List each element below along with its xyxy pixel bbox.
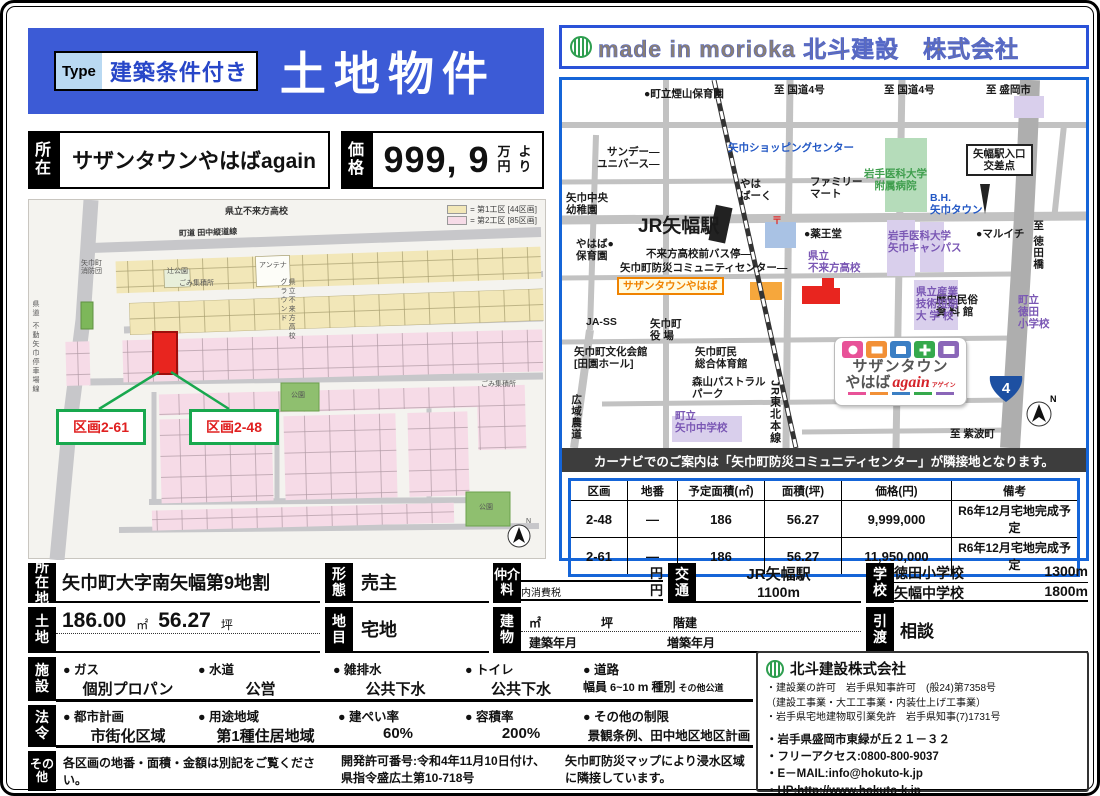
map-label-kozukata-hs: 県立 不来方高校 xyxy=(808,250,861,274)
col-kukaku: 区画 xyxy=(570,480,628,501)
southern-town-logo: サザンタウン やはば again アゲイン xyxy=(834,337,967,406)
tochi-tsubo: 56.27 xyxy=(158,609,211,633)
label-kotsu: 交通 xyxy=(668,563,696,603)
bullet-icon: ● xyxy=(198,710,206,724)
tatemono-u1: ㎡ xyxy=(529,614,541,631)
kotsu-line1: JR矢幅駅 xyxy=(696,563,861,584)
sonota-note3: 矢巾町防災マップにより浸水区域に隣接しています。 xyxy=(565,753,753,787)
gakko-school1: 徳田小学校 xyxy=(894,563,964,582)
tatemono-extended: 増築年月 xyxy=(667,634,715,651)
bag-icon xyxy=(890,341,911,358)
zatsuhaisui-name: 雑排水 xyxy=(344,663,382,677)
field-tochi: 186.00 ㎡ 56.27 坪 xyxy=(56,607,320,653)
flyer-page: Type 建築条件付き 土地物件 made in morioka 北斗建設 株式… xyxy=(0,0,1100,796)
map-label-jr-tohoku: JR東北本線 xyxy=(768,380,781,444)
kotsu-line2: 1100m xyxy=(696,584,861,600)
gas-name: ガス xyxy=(74,663,99,677)
legend-label-block1: = 第1工区 [44区画] xyxy=(470,204,537,215)
tochi-line1: 186.00 ㎡ 56.27 坪 xyxy=(56,607,320,634)
suido-name: 水道 xyxy=(209,663,234,677)
map-label-kokudo4b: 至 国道4号 xyxy=(884,84,935,96)
shisetsu-suido: ● 水道 公営 xyxy=(198,659,323,699)
label-shisetsu: 施設 xyxy=(28,657,56,701)
map-label-family-mart: ファミリー マート xyxy=(810,176,863,200)
map-label-yakuodo: ●薬王堂 xyxy=(804,228,842,240)
map-label-kokudo4a: 至 国道4号 xyxy=(774,84,825,96)
map-label-koiki-nodo: 広域農道 xyxy=(570,394,582,440)
plan-block1 xyxy=(116,247,544,336)
location-value: サザンタウンやはばagain xyxy=(58,131,330,189)
kenpei-value: 60% xyxy=(338,725,458,742)
tochi-unit-tsubo: 坪 xyxy=(221,616,233,633)
building-condition-label: 建築条件付き xyxy=(102,53,256,89)
callout-lot-2-48: 区画2-48 xyxy=(189,409,279,445)
price-suffix-ri: り xyxy=(519,160,532,175)
cell-price: 9,999,000 xyxy=(842,501,952,538)
medical-cross-icon xyxy=(914,341,935,358)
map-label-maruichi: ●マルイチ xyxy=(976,228,1024,240)
plan-label-road-left: 県道 不動矢巾停車場線 xyxy=(31,300,39,394)
price-table-header-row: 区画 地番 予定面積(㎡) 面積(坪) 価格(円) 備考 xyxy=(570,480,1079,501)
plan-label-park2: 公園 xyxy=(479,504,493,512)
company-address: ・岩手県盛岡市東緑が丘２１－３２ xyxy=(766,732,1079,749)
map-label-bunka-kaikan: 矢巾町文化会館 [田園ホール] xyxy=(574,346,648,370)
map-label-bus-stop: 不来方高校前バス停― xyxy=(646,248,751,260)
chukai-line2: 内消費税 円 xyxy=(521,582,663,601)
tatemono-line1: ㎡ 坪 階建 xyxy=(521,607,861,632)
plan-firestation-lot xyxy=(81,302,93,329)
horei-sonota-seigen: ● その他の制限 景観条例、田中地区地区計画 xyxy=(583,706,755,744)
logo-line2: やはば xyxy=(845,375,890,390)
bullet-icon: ● xyxy=(333,663,341,677)
col-area-m2: 予定面積(㎡) xyxy=(678,480,765,501)
chukai-tax-label: 内消費税 xyxy=(521,584,561,599)
shisetsu-zatsuhaisui: ● 雑排水 公共下水 xyxy=(333,659,458,699)
map-label-yahaba-hoikuen: やはば● 保育園 xyxy=(576,238,614,262)
divider xyxy=(56,699,753,702)
page-title: 土地物件 xyxy=(280,38,496,104)
field-kotsu: JR矢幅駅 1100m xyxy=(696,563,861,603)
logo-again: again xyxy=(892,375,929,391)
map-caption: カーナビでのご案内は「矢巾町防災コミュニティセンター」が隣接地となります。 xyxy=(562,448,1086,472)
map-compass xyxy=(1027,402,1051,426)
map-label-sunday: サンデー― ユニバース― xyxy=(597,146,659,170)
map-label-taiikukan: 矢巾町民 総合体育館 xyxy=(695,346,748,370)
label-keitai: 形態 xyxy=(325,563,353,603)
company-licenses: ・建設業の許可 岩手県知事許可 (般24)第7358号 （建設工事業・大工工事業… xyxy=(766,682,1079,726)
map-label-morioka: 至 盛岡市 xyxy=(986,84,1031,96)
legend-swatch-block2 xyxy=(447,216,467,225)
price-unit-man: 万 xyxy=(498,145,511,160)
price-unit-yen: 円 xyxy=(498,160,511,175)
horei-yotochiiki: ● 用途地域 第1種住居地域 xyxy=(198,706,333,746)
map-label-bosai-center: 矢巾町防災コミュニティセンター― xyxy=(620,262,787,274)
table-row: 2-48 — 186 56.27 9,999,000 R6年12月宅地完成予定 xyxy=(570,501,1079,538)
area-map: 4 N ●町立煙山保育園 至 国道4号 至 国道4号 至 盛岡市 サンデー― ユ… xyxy=(562,80,1086,448)
map-label-sangyo-college: 県立産業 技術短期 大 学 校 xyxy=(916,286,958,322)
type-label: Type xyxy=(56,53,102,89)
yoseki-value: 200% xyxy=(465,725,577,742)
road-detail: 幅員 6~10 m 種別 その他公道 xyxy=(583,678,755,695)
chukai-yen2: 円 xyxy=(650,580,663,599)
map-label-southern-town: サザンタウンやはば xyxy=(617,277,724,295)
field-keitai: 売主 xyxy=(353,563,489,603)
company-banner: made in morioka 北斗建設 株式会社 xyxy=(559,25,1089,69)
map-label-yahaba-chu: 町立 矢巾中学校 xyxy=(675,410,728,434)
gakko-row2: 矢幅中学校 1800m xyxy=(894,583,1088,602)
bullet-icon: ● xyxy=(63,663,71,677)
logo-line2-wrap: やはば again アゲイン xyxy=(840,375,961,391)
tatemono-u3: 階建 xyxy=(673,614,697,631)
chukai-yen1: 円 xyxy=(521,563,663,582)
callout-lot-2-61: 区画2-61 xyxy=(56,409,146,445)
map-label-bh-town: B.H. 矢巾タウン xyxy=(930,192,983,216)
hokuto-logo-icon xyxy=(570,36,592,58)
building-icon xyxy=(938,341,959,358)
map-label-tokuda-sho: 町立 徳田 小学校 xyxy=(1018,294,1050,330)
bullet-icon: ● xyxy=(583,663,591,677)
col-chiban: 地番 xyxy=(628,480,678,501)
bullet-icon: ● xyxy=(583,710,591,724)
horei-toshikeikaku: ● 都市計画 市街化区域 xyxy=(63,706,193,746)
logo-kana: アゲイン xyxy=(932,383,956,389)
keitai-value: 売主 xyxy=(353,569,397,595)
cell-area-tsubo: 56.27 xyxy=(765,501,842,538)
map-label-ja-ss: JA-SS xyxy=(586,316,617,328)
horei-yoseki: ● 容積率 200% xyxy=(465,706,577,742)
company-banner-text: made in morioka 北斗建設 株式会社 xyxy=(598,30,1019,64)
site-plan: 県立不来方高校 町道 田中縦道線 県道 不動矢巾停車場線 県立不来方高校 グラウ… xyxy=(28,199,546,559)
label-sonota: その他 xyxy=(28,751,56,791)
plan-label-firestation: 矢巾町 消防団 xyxy=(81,260,102,276)
map-label-shopping-center: 矢巾ショッピングセンター xyxy=(728,142,854,154)
horei-kenpei: ● 建ぺい率 60% xyxy=(338,706,458,742)
yotochiiki-value: 第1種住居地域 xyxy=(198,725,333,746)
company-info-box: 北斗建設株式会社 ・建設業の許可 岩手県知事許可 (般24)第7358号 （建設… xyxy=(756,651,1089,792)
southern-town-logo-icons xyxy=(840,341,961,358)
map-label-chuo-yochien: 矢巾中央 幼稚園 xyxy=(566,192,608,216)
label-tatemono: 建物 xyxy=(493,607,521,653)
map-label-yahaba-park: やは ばーく xyxy=(740,178,772,202)
price-suffix-yo: よ xyxy=(519,145,532,160)
gakko-row1: 徳田小学校 1300m xyxy=(894,563,1088,583)
company-free-access: ・フリーアクセス:0800-800-9037 xyxy=(766,749,1079,766)
label-tochi: 土地 xyxy=(28,607,56,653)
field-shozaichi: 矢巾町大字南矢幅第9地割 xyxy=(56,563,320,603)
bullet-icon: ● xyxy=(465,663,473,677)
company-header: 北斗建設株式会社 xyxy=(766,658,1079,679)
company-email: ・E－MAIL:info@hokuto-k.jp xyxy=(766,766,1079,783)
license-1: ・建設業の許可 岩手県知事許可 (般24)第7358号 xyxy=(766,682,1079,697)
company-name: 北斗建設株式会社 xyxy=(790,658,906,679)
toilet-name: トイレ xyxy=(476,663,514,677)
type-chip: Type 建築条件付き xyxy=(54,51,258,91)
toilet-value: 公共下水 xyxy=(465,678,577,699)
hikiwatashi-value: 相談 xyxy=(894,617,934,642)
map-southern-town-site xyxy=(750,282,782,300)
tochi-line2 xyxy=(56,634,320,653)
road-shubetsu-label: 種別 xyxy=(651,678,675,695)
label-chimoku: 地目 xyxy=(325,607,353,653)
field-chukai: 円 内消費税 円 xyxy=(521,563,663,603)
legend-label-block2: = 第2工区 [85区画] xyxy=(470,215,537,226)
label-hikiwatashi: 引渡 xyxy=(866,607,894,653)
map-label-station: JR矢幅駅 xyxy=(638,216,719,238)
plan-label-tsuji-park: 辻公園 xyxy=(167,268,188,276)
cell-chiban: — xyxy=(628,501,678,538)
location-label: 所在 xyxy=(28,131,58,189)
price-number: 999, 9 xyxy=(383,139,489,181)
logo-bars xyxy=(840,392,961,395)
map-purple-zone xyxy=(1014,96,1044,118)
plan-label-gomi1: ごみ集積所 xyxy=(179,280,214,288)
shisetsu-toilet: ● トイレ 公共下水 xyxy=(465,659,577,699)
site-plan-drawing xyxy=(29,200,547,560)
road-kind: その他公道 xyxy=(678,681,723,694)
yoseki-name: 容積率 xyxy=(476,710,514,724)
map-label-shiwa: 至 紫波町 xyxy=(950,428,995,440)
chimoku-value: 宅地 xyxy=(353,616,397,642)
bullet-icon: ● xyxy=(63,710,71,724)
gakko-school2: 矢幅中学校 xyxy=(894,583,964,600)
map-label-pastoral-park: 森山パストラル パーク xyxy=(692,376,766,400)
map-label-idai-campus: 岩手医科大学 矢巾キャンパス xyxy=(888,230,962,254)
cell-kukaku: 2-48 xyxy=(570,501,628,538)
shozaichi-value: 矢巾町大字南矢幅第9地割 xyxy=(56,569,270,595)
cell-note: R6年12月宅地完成予定 xyxy=(952,501,1079,538)
hokuto-logo-icon xyxy=(766,660,784,678)
col-area-tsubo: 面積(坪) xyxy=(765,480,842,501)
zatsuhaisui-value: 公共下水 xyxy=(333,678,458,699)
road-haba-value: 6~10 xyxy=(610,682,635,694)
label-horei: 法令 xyxy=(28,705,56,747)
map-panel: 4 N ●町立煙山保育園 至 国道4号 至 国道4号 至 盛岡市 サンデー― ユ… xyxy=(559,77,1089,561)
label-chukai: 仲介料 xyxy=(493,563,521,603)
home-icon xyxy=(866,341,887,358)
gas-value: 個別プロパン xyxy=(63,678,193,699)
price-suffix: よ り xyxy=(519,145,532,175)
post-office-icon: 〒 xyxy=(772,212,782,227)
shisetsu-road: ● 道路 幅員 6~10 m 種別 その他公道 xyxy=(583,659,755,695)
plan-label-park1: 公園 xyxy=(291,392,305,400)
road-name: 道路 xyxy=(594,663,619,677)
highlighted-lots xyxy=(153,332,177,374)
license-1b: （建設工事業・大工工事業・内装仕上げ工事業） xyxy=(766,697,1079,712)
field-gakko: 徳田小学校 1300m 矢幅中学校 1800m xyxy=(894,563,1088,603)
map-label-yakuba: 矢巾町 役 場 xyxy=(650,318,682,342)
company-hp: ・HP:http://www.hokuto-k.jp xyxy=(766,783,1079,796)
shisetsu-gas: ● ガス 個別プロパン xyxy=(63,659,193,699)
toshikeikaku-name: 都市計画 xyxy=(74,710,124,724)
yotochiiki-name: 用途地域 xyxy=(209,710,259,724)
plan-legend: = 第1工区 [44区画] = 第2工区 [85区画] xyxy=(447,204,537,226)
tatemono-line2: 建築年月 増築年月 xyxy=(521,632,861,653)
tochi-unit-m2: ㎡ xyxy=(136,616,148,633)
bullet-icon: ● xyxy=(198,663,206,677)
col-note: 備考 xyxy=(952,480,1079,501)
cell-area-m2: 186 xyxy=(678,501,765,538)
company-contact: ・岩手県盛岡市東緑が丘２１－３２ ・フリーアクセス:0800-800-9037 … xyxy=(766,732,1079,796)
bullet-icon: ● xyxy=(338,710,346,724)
label-shozaichi: 所在地 xyxy=(28,563,56,603)
field-tatemono: ㎡ 坪 階建 建築年月 増築年月 xyxy=(521,607,861,653)
col-price: 価格(円) xyxy=(842,480,952,501)
map-property-marker xyxy=(802,278,840,304)
price-unit: 万 円 xyxy=(498,145,511,175)
plan-compass xyxy=(508,525,530,547)
route4-number: 4 xyxy=(1002,380,1011,397)
label-gakko: 学校 xyxy=(866,563,894,603)
suido-value: 公営 xyxy=(198,678,323,699)
road-haba-label: 幅員 xyxy=(583,678,607,695)
plan-label-ground: 県立不来方高校 グラウンド xyxy=(279,278,295,341)
license-2: ・岩手県宅地建物取引業免許 岩手県知事(7)1731号 xyxy=(766,711,1079,726)
title-banner: Type 建築条件付き 土地物件 xyxy=(28,28,544,114)
gakko-dist2: 1800m xyxy=(1044,583,1088,600)
seigen-value: 景観条例、田中地区地区計画 xyxy=(583,725,755,744)
sonota-note2: 開発許可番号:令和4年11月10日付け、県指令盛広土第10-718号 xyxy=(341,753,556,787)
plan-label-school: 県立不来方高校 xyxy=(225,206,288,216)
toshikeikaku-value: 市街化区域 xyxy=(63,725,193,746)
map-label-hiyama-hoikuen: ●町立煙山保育園 xyxy=(644,88,724,100)
field-chimoku: 宅地 xyxy=(353,607,489,653)
flower-icon xyxy=(842,341,863,358)
map-north-letter: N xyxy=(1050,394,1057,404)
road-haba-unit: m xyxy=(638,680,649,694)
tatemono-u2: 坪 xyxy=(601,614,613,631)
plan-label-north: N xyxy=(526,518,531,526)
plan-label-gomi2: ごみ集積所 xyxy=(481,381,516,389)
gakko-dist1: 1300m xyxy=(1044,563,1088,582)
price-value-box: 999, 9 万 円 よ り xyxy=(371,131,544,189)
logo-line1: サザンタウン xyxy=(840,359,961,375)
map-label-tokudabashi: 至 徳田橋 xyxy=(1032,220,1044,270)
kenpei-name: 建ぺい率 xyxy=(349,710,399,724)
field-hikiwatashi: 相談 xyxy=(894,607,1088,653)
sonota-note1: 各区画の地番・面積・金額は別記をご覧ください。 xyxy=(63,755,331,789)
map-label-ekiguchi: 矢幅駅入口 交差点 xyxy=(966,144,1033,176)
seigen-name: その他の制限 xyxy=(594,710,669,724)
legend-swatch-block1 xyxy=(447,205,467,214)
tatemono-built: 建築年月 xyxy=(529,634,577,651)
tochi-m2: 186.00 xyxy=(62,609,126,633)
price-label: 価格 xyxy=(341,131,371,189)
map-label-idai-hospital: 岩手医科大学 附属病院 xyxy=(864,168,927,192)
bullet-icon: ● xyxy=(465,710,473,724)
plan-label-antenna: アンテナ xyxy=(259,262,287,270)
